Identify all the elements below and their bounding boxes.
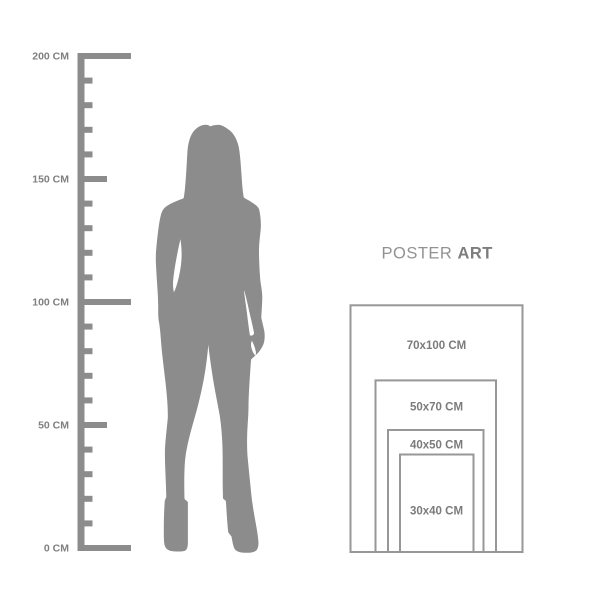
svg-text:150 CM: 150 CM <box>32 174 69 186</box>
svg-text:POSTER ART: POSTER ART <box>382 245 493 263</box>
svg-text:200 CM: 200 CM <box>32 51 69 63</box>
svg-text:0 CM: 0 CM <box>44 543 69 555</box>
svg-text:40x50 CM: 40x50 CM <box>410 440 463 452</box>
svg-text:70x100 CM: 70x100 CM <box>407 340 466 352</box>
svg-text:50x70 CM: 50x70 CM <box>410 402 463 414</box>
svg-text:30x40 CM: 30x40 CM <box>410 506 463 518</box>
svg-text:50 CM: 50 CM <box>38 420 69 432</box>
svg-text:100 CM: 100 CM <box>32 297 69 309</box>
